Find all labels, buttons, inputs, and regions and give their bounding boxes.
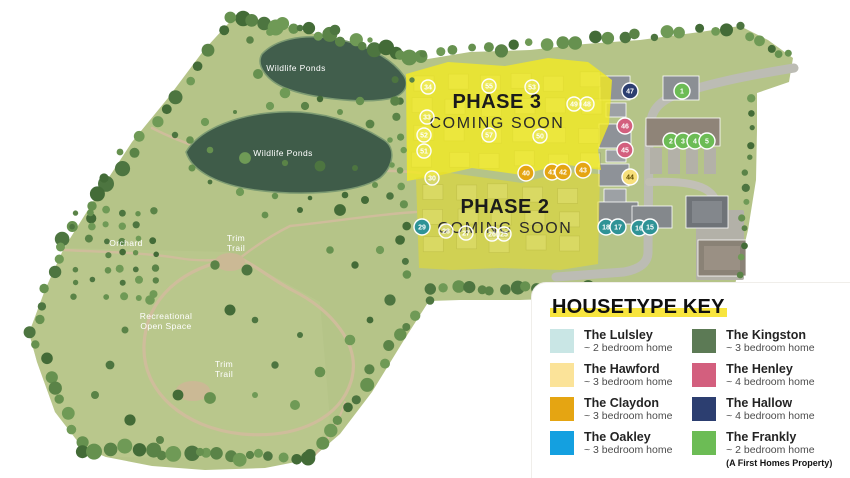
- tree: [557, 36, 570, 49]
- tree: [49, 382, 62, 395]
- svg-text:43: 43: [579, 168, 587, 175]
- tree: [389, 162, 395, 168]
- tree: [420, 50, 427, 57]
- tree: [358, 42, 367, 51]
- tree: [99, 173, 108, 182]
- svg-text:27: 27: [462, 231, 470, 238]
- tree: [448, 45, 458, 55]
- tree: [661, 25, 674, 38]
- tree: [335, 37, 345, 47]
- tree: [402, 222, 411, 231]
- svg-text:47: 47: [626, 89, 634, 96]
- housetype-name: The Hallow: [726, 396, 814, 410]
- tree: [152, 264, 159, 271]
- tree: [297, 25, 304, 32]
- tree: [367, 37, 372, 42]
- tree: [280, 88, 291, 99]
- plot-marker-44[interactable]: 44: [622, 169, 638, 185]
- legend-item-the-lulsley: The Lulsley~ 2 bedroom home: [550, 328, 678, 358]
- legend-item-the-claydon: The Claydon~ 3 bedroom home: [550, 396, 678, 426]
- tree: [236, 188, 244, 196]
- tree: [403, 270, 412, 279]
- map-label-wildlife-ponds-2: Wildlife Ponds: [253, 148, 312, 158]
- plot-marker-43[interactable]: 43: [575, 162, 591, 178]
- tree: [208, 180, 213, 185]
- tree: [364, 364, 374, 374]
- color-swatch: [692, 363, 716, 387]
- tree: [352, 165, 358, 171]
- tree: [742, 169, 748, 175]
- tree: [70, 294, 76, 300]
- tree: [120, 280, 126, 286]
- tree: [345, 335, 356, 346]
- housetype-description: ~ 3 bedroom home: [584, 410, 672, 423]
- tree: [343, 403, 353, 413]
- tree: [173, 390, 184, 401]
- tree: [55, 255, 64, 264]
- tree: [55, 394, 64, 403]
- tree: [326, 246, 334, 254]
- tree: [119, 223, 126, 230]
- tree: [104, 443, 118, 457]
- tree: [272, 193, 278, 199]
- plot-marker-51[interactable]: 51: [417, 144, 431, 158]
- tree: [402, 323, 410, 331]
- tree: [651, 34, 658, 41]
- plot-marker-17[interactable]: 17: [610, 219, 626, 235]
- tree: [210, 447, 223, 460]
- plot-marker-27[interactable]: 27: [459, 226, 473, 240]
- svg-text:30: 30: [428, 176, 436, 183]
- tree: [90, 277, 96, 283]
- tree: [252, 392, 258, 398]
- tree: [73, 280, 78, 285]
- tree: [409, 77, 414, 82]
- tree: [210, 260, 219, 269]
- svg-text:33: 33: [423, 115, 431, 122]
- tree: [711, 27, 720, 36]
- tree: [748, 110, 755, 117]
- tree: [49, 266, 61, 278]
- svg-text:25: 25: [500, 232, 508, 239]
- tree: [495, 44, 508, 57]
- tree: [352, 395, 361, 404]
- housetype-name: The Claydon: [584, 396, 672, 410]
- tree: [133, 443, 146, 456]
- svg-text:29: 29: [418, 225, 426, 232]
- tree: [136, 295, 142, 301]
- tree: [86, 444, 102, 460]
- tree: [366, 120, 375, 129]
- tree: [69, 224, 75, 230]
- plot-marker-52[interactable]: 52: [417, 128, 431, 142]
- tree: [134, 131, 145, 142]
- svg-text:42: 42: [559, 170, 567, 177]
- plot-marker-33[interactable]: 33: [420, 110, 434, 124]
- tree: [103, 221, 109, 227]
- tree: [720, 23, 733, 36]
- tree: [119, 210, 126, 217]
- tree: [324, 424, 337, 437]
- tree: [301, 102, 309, 110]
- tree: [73, 210, 78, 215]
- first-homes-note: (A First Homes Property): [726, 458, 832, 468]
- tree: [390, 96, 400, 106]
- tree: [485, 286, 494, 295]
- tree: [387, 137, 393, 143]
- color-swatch: [550, 397, 574, 421]
- tree: [262, 212, 269, 219]
- tree: [88, 223, 96, 231]
- plot-marker-28[interactable]: 28: [439, 224, 453, 238]
- tree: [266, 28, 274, 36]
- tree: [737, 272, 744, 279]
- tree: [303, 22, 315, 34]
- tree: [242, 265, 253, 276]
- tree: [157, 451, 167, 461]
- housetype-description: ~ 2 bedroom home: [726, 444, 832, 457]
- tree: [410, 311, 420, 321]
- tree: [145, 295, 155, 305]
- plot-marker-15[interactable]: 15: [642, 219, 658, 235]
- tree: [750, 125, 755, 130]
- tree: [196, 448, 204, 456]
- tree: [156, 436, 164, 444]
- tree: [775, 50, 783, 58]
- tree: [225, 305, 236, 316]
- svg-text:PHASE 3: PHASE 3: [452, 91, 541, 113]
- svg-text:1: 1: [680, 89, 684, 96]
- tree: [314, 32, 323, 41]
- tree: [747, 142, 754, 149]
- tree: [233, 453, 247, 467]
- plot-marker-29[interactable]: 29: [414, 219, 430, 235]
- tree: [225, 12, 237, 24]
- tree: [785, 50, 792, 57]
- tree: [254, 449, 263, 458]
- svg-text:57: 57: [485, 133, 493, 140]
- svg-text:34: 34: [424, 85, 432, 92]
- housetype-description: ~ 3 bedroom home: [584, 444, 672, 457]
- housetype-description: ~ 2 bedroom home: [584, 342, 672, 355]
- plot-marker-30[interactable]: 30: [425, 171, 439, 185]
- plot-marker-55[interactable]: 55: [482, 79, 496, 93]
- tree: [186, 136, 194, 144]
- tree: [743, 199, 749, 205]
- svg-text:44: 44: [626, 175, 634, 182]
- tree: [116, 265, 124, 273]
- tree: [239, 152, 251, 164]
- tree: [105, 252, 111, 258]
- tree: [525, 38, 533, 46]
- svg-text:45: 45: [621, 148, 629, 155]
- legend-item-the-hawford: The Hawford~ 3 bedroom home: [550, 362, 678, 392]
- tree: [397, 167, 404, 174]
- tree: [133, 250, 138, 255]
- housetype-name: The Lulsley: [584, 328, 672, 342]
- tree: [304, 449, 315, 460]
- tree: [395, 50, 405, 60]
- tree: [253, 69, 263, 79]
- svg-text:15: 15: [646, 225, 654, 232]
- tree: [152, 116, 163, 127]
- tree: [742, 184, 750, 192]
- tree: [468, 44, 476, 52]
- tree: [317, 96, 323, 102]
- tree: [383, 340, 394, 351]
- tree: [133, 221, 140, 228]
- tree: [130, 148, 140, 158]
- tree: [201, 118, 209, 126]
- tree: [541, 38, 554, 51]
- tree: [124, 414, 135, 425]
- svg-text:3: 3: [681, 139, 685, 146]
- tree: [367, 317, 374, 324]
- tree: [117, 439, 132, 454]
- tree: [202, 44, 215, 57]
- legend-item-the-henley: The Henley~ 4 bedroom home: [692, 362, 838, 392]
- tree: [31, 340, 39, 348]
- tree: [62, 407, 75, 420]
- tree: [376, 246, 384, 254]
- tree: [297, 207, 303, 213]
- tree: [266, 102, 274, 110]
- tree: [425, 283, 436, 294]
- tree: [334, 204, 346, 216]
- tree: [233, 110, 237, 114]
- tree: [297, 332, 303, 338]
- tree: [41, 353, 53, 365]
- trim-trail-clearing-1: [215, 253, 245, 271]
- tree: [745, 32, 754, 41]
- tree: [316, 437, 329, 450]
- tree: [629, 29, 640, 40]
- svg-text:55: 55: [485, 84, 493, 91]
- housetype-name: The Kingston: [726, 328, 814, 342]
- map-label-trim-trail-1: TrimTrail: [227, 233, 245, 253]
- tree: [279, 453, 289, 463]
- tree: [276, 17, 289, 30]
- tree: [204, 392, 216, 404]
- svg-text:18: 18: [602, 225, 610, 232]
- tree: [38, 302, 46, 310]
- tree: [90, 186, 105, 201]
- tree: [291, 454, 302, 465]
- tree: [315, 161, 326, 172]
- tree: [738, 214, 745, 221]
- tree: [372, 182, 378, 188]
- tree: [315, 367, 326, 378]
- plot-marker-5[interactable]: 5: [699, 133, 715, 149]
- housetype-name: The Frankly: [726, 430, 832, 444]
- tree: [245, 14, 258, 27]
- key-grid: The Lulsley~ 2 bedroom homeThe Hawford~ …: [550, 328, 838, 468]
- housetype-key-panel: HOUSETYPE KEY The Lulsley~ 2 bedroom hom…: [532, 283, 850, 478]
- tree: [602, 32, 615, 45]
- tree: [133, 267, 139, 273]
- tree: [165, 446, 181, 462]
- legend-item-the-kingston: The Kingston~ 3 bedroom home: [692, 328, 838, 358]
- tree: [153, 252, 159, 258]
- tree: [73, 267, 79, 273]
- tree: [120, 292, 128, 300]
- tree: [85, 235, 93, 243]
- tree: [768, 45, 776, 53]
- svg-text:40: 40: [522, 171, 530, 178]
- tree: [356, 97, 364, 105]
- tree: [401, 147, 407, 153]
- tree: [741, 243, 748, 250]
- tree: [452, 280, 465, 293]
- tree: [106, 361, 115, 370]
- svg-text:46: 46: [621, 124, 629, 131]
- tree: [589, 31, 602, 44]
- tree: [308, 196, 313, 201]
- color-swatch: [550, 431, 574, 455]
- svg-text:28: 28: [442, 229, 450, 236]
- plot-marker-48[interactable]: 48: [580, 97, 594, 111]
- tree: [135, 276, 143, 284]
- tree: [117, 149, 124, 156]
- plot-marker-49[interactable]: 49: [567, 97, 581, 111]
- tree: [282, 160, 288, 166]
- site-plan-page: Wildlife PondsWildlife PondsOrchardTrimT…: [0, 0, 850, 478]
- tree: [169, 90, 183, 104]
- tree: [102, 206, 110, 214]
- tree: [87, 201, 96, 210]
- tree: [91, 391, 99, 399]
- plot-marker-40[interactable]: 40: [518, 165, 534, 181]
- plot-marker-46[interactable]: 46: [617, 118, 633, 134]
- tree: [747, 94, 755, 102]
- tree: [436, 47, 445, 56]
- housetype-name: The Oakley: [584, 430, 672, 444]
- tree: [103, 294, 109, 300]
- tree: [380, 359, 390, 369]
- housetype-description: ~ 4 bedroom home: [726, 376, 814, 389]
- svg-text:17: 17: [614, 225, 622, 232]
- tree: [119, 249, 126, 256]
- tree: [337, 109, 343, 115]
- tree: [695, 24, 704, 33]
- tree: [500, 284, 511, 295]
- tree: [246, 36, 254, 44]
- tree: [754, 35, 765, 46]
- plot-marker-50[interactable]: 50: [533, 129, 547, 143]
- svg-text:49: 49: [570, 102, 578, 109]
- tree: [271, 361, 278, 368]
- svg-text:51: 51: [420, 149, 428, 156]
- housetype-description: ~ 4 bedroom home: [726, 410, 814, 423]
- svg-text:COMING SOON: COMING SOON: [430, 115, 565, 132]
- tree: [747, 155, 752, 160]
- housetype-description: ~ 3 bedroom home: [726, 342, 814, 355]
- tree: [395, 235, 405, 245]
- color-swatch: [550, 363, 574, 387]
- tree: [150, 207, 157, 214]
- tree: [736, 22, 744, 30]
- svg-text:PHASE 2: PHASE 2: [460, 196, 549, 218]
- legend-item-the-hallow: The Hallow~ 4 bedroom home: [692, 396, 838, 426]
- tree: [342, 192, 349, 199]
- map-label-wildlife-ponds-1: Wildlife Ponds: [266, 63, 325, 73]
- tree: [149, 237, 156, 244]
- plot-marker-25[interactable]: 25: [497, 227, 511, 241]
- svg-text:4: 4: [693, 139, 697, 146]
- plot-marker-53[interactable]: 53: [525, 80, 539, 94]
- tree: [400, 200, 408, 208]
- tree: [219, 25, 229, 35]
- tree: [263, 451, 273, 461]
- tree: [193, 61, 203, 71]
- tree: [484, 42, 494, 52]
- tree: [39, 284, 48, 293]
- tree: [520, 281, 530, 291]
- tree: [67, 425, 77, 435]
- tree: [162, 104, 172, 114]
- map-label-recreational-open-space: RecreationalOpen Space: [140, 311, 193, 331]
- key-title: HOUSETYPE KEY: [550, 296, 838, 319]
- tree: [153, 277, 159, 283]
- tree: [426, 296, 435, 305]
- housetype-description: ~ 3 bedroom home: [584, 376, 672, 389]
- tree: [463, 281, 475, 293]
- tree: [392, 76, 399, 83]
- tree: [738, 254, 745, 261]
- tree: [105, 267, 112, 274]
- svg-text:48: 48: [583, 102, 591, 109]
- tree: [386, 192, 394, 200]
- svg-text:5: 5: [705, 139, 709, 146]
- tree: [330, 25, 341, 36]
- color-swatch: [692, 329, 716, 353]
- plot-marker-47[interactable]: 47: [622, 83, 638, 99]
- map-label-trim-trail-2: TrimTrail: [215, 359, 233, 379]
- housetype-name: The Henley: [726, 362, 814, 376]
- svg-text:52: 52: [420, 133, 428, 140]
- svg-text:50: 50: [536, 134, 544, 141]
- tree: [207, 147, 214, 154]
- plot-marker-57[interactable]: 57: [482, 128, 496, 142]
- tree: [673, 27, 685, 39]
- tree: [186, 77, 195, 86]
- color-swatch: [550, 329, 574, 353]
- legend-item-the-oakley: The Oakley~ 3 bedroom home: [550, 430, 678, 469]
- housetype-name: The Hawford: [584, 362, 672, 376]
- plot-marker-45[interactable]: 45: [617, 142, 633, 158]
- tree: [290, 400, 300, 410]
- tree: [361, 196, 369, 204]
- legend-item-the-frankly: The Frankly~ 2 bedroom home(A First Home…: [692, 430, 838, 469]
- tree: [122, 327, 129, 334]
- tree: [351, 261, 358, 268]
- svg-text:53: 53: [528, 85, 536, 92]
- svg-text:26: 26: [488, 232, 496, 239]
- tree: [252, 317, 259, 324]
- tree: [172, 132, 178, 138]
- plot-marker-1[interactable]: 1: [674, 83, 690, 99]
- tree: [115, 161, 130, 176]
- tree: [509, 40, 519, 50]
- color-swatch: [692, 431, 716, 455]
- tree: [397, 134, 404, 141]
- tree: [35, 315, 44, 324]
- plot-marker-42[interactable]: 42: [555, 164, 571, 180]
- tree: [742, 225, 748, 231]
- tree: [135, 211, 140, 216]
- plot-marker-34[interactable]: 34: [421, 80, 435, 94]
- color-swatch: [692, 397, 716, 421]
